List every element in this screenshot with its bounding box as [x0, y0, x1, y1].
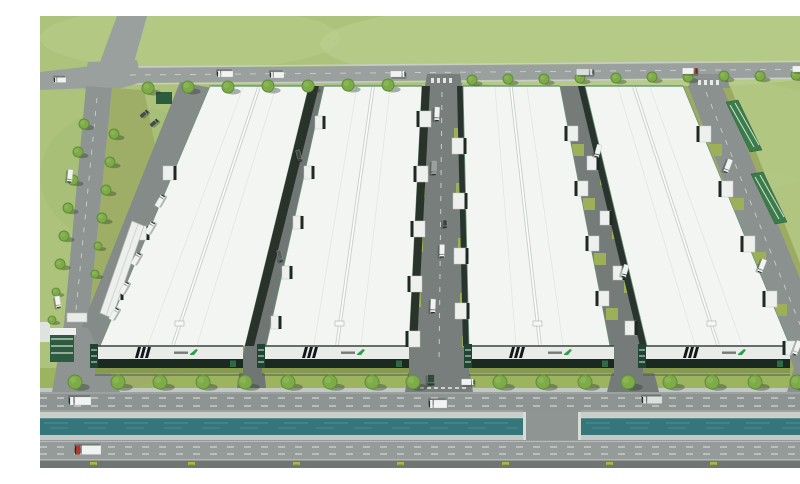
- dock-lawn: [583, 198, 595, 210]
- median-plant-shade: [503, 464, 508, 465]
- truck: [429, 161, 436, 176]
- dock-door-shadow: [467, 303, 470, 319]
- tree-highlight: [720, 72, 725, 77]
- crosswalk: [704, 80, 707, 85]
- tree-highlight: [56, 260, 61, 265]
- crosswalk: [431, 78, 434, 83]
- tree-highlight: [792, 377, 798, 383]
- median-plant-shade: [91, 464, 96, 465]
- crosswalk: [716, 80, 719, 85]
- truck-windshield: [443, 227, 446, 228]
- truck-windshield: [473, 379, 474, 384]
- dock-canopy-roof: [600, 211, 611, 225]
- facade-lower-band-4: [645, 359, 790, 368]
- truck-windshield: [642, 397, 643, 403]
- dock-door-shadow: [565, 126, 568, 141]
- loading-dock-canopy: [411, 221, 426, 237]
- dock-canopy-roof: [415, 166, 428, 182]
- loading-dock-canopy: [406, 331, 421, 347]
- brand-logo-text: [548, 352, 562, 354]
- truck: [428, 398, 447, 408]
- dock-door-shadow: [414, 166, 417, 182]
- truck-trailer: [428, 375, 435, 383]
- facade-lower-band-1: [97, 359, 243, 368]
- median-plant-shade: [294, 464, 299, 465]
- truck: [577, 69, 595, 77]
- truck-windshield: [435, 120, 439, 121]
- truck: [438, 244, 445, 258]
- facade-door: [396, 361, 402, 368]
- dock-door-shadow: [763, 291, 766, 307]
- dock-canopy-roof: [163, 166, 175, 180]
- dock-door-shadow: [719, 181, 722, 197]
- brand-logo-text: [174, 352, 188, 354]
- median-plant-shade: [607, 464, 612, 465]
- tree-highlight: [53, 289, 57, 293]
- tree-highlight: [80, 120, 85, 125]
- loading-dock-canopy: [625, 321, 638, 335]
- tree-highlight: [468, 76, 473, 81]
- tree-highlight: [612, 74, 617, 79]
- loading-dock-canopy: [408, 276, 423, 292]
- gatehouse: [50, 332, 74, 362]
- truck-trailer: [67, 169, 73, 179]
- crosswalk: [443, 78, 446, 83]
- dock-door-shadow: [279, 316, 282, 329]
- truck-trailer: [57, 78, 66, 83]
- truck-windshield: [432, 174, 436, 175]
- warehouse-facade-3: [471, 346, 614, 359]
- tree-highlight: [495, 377, 501, 383]
- dock-door-shadow: [597, 156, 600, 170]
- brand-logo-text: [341, 352, 355, 354]
- gatehouse-roof: [48, 328, 76, 335]
- hedge: [95, 368, 243, 373]
- tree-highlight: [540, 75, 545, 80]
- dock-door-shadow: [464, 138, 467, 154]
- tree-highlight: [283, 377, 289, 383]
- loading-dock-canopy: [596, 291, 610, 306]
- canal-bridge: [523, 410, 581, 440]
- truck: [426, 375, 435, 387]
- canal-embankment-north: [40, 412, 800, 418]
- tree-highlight: [74, 148, 79, 153]
- canal-water-east: [581, 418, 800, 435]
- dock-door-shadow: [466, 248, 469, 264]
- facade-door: [230, 361, 236, 368]
- truck-trailer: [431, 161, 436, 172]
- loading-dock-canopy: [452, 138, 467, 154]
- dock-door-shadow: [408, 276, 411, 292]
- truck-trailer: [793, 66, 800, 72]
- dock-canopy-roof: [764, 291, 777, 307]
- truck-windshield: [75, 446, 76, 454]
- dock-door-shadow: [301, 216, 304, 229]
- truck: [641, 395, 662, 404]
- loading-dock-canopy: [304, 166, 315, 179]
- dock-canopy-roof: [412, 221, 425, 237]
- tree-highlight: [623, 377, 629, 383]
- loading-dock-canopy: [282, 266, 293, 279]
- dock-canopy-roof: [625, 321, 636, 335]
- truck-trailer: [221, 71, 233, 77]
- loading-dock-canopy: [417, 111, 432, 127]
- truck: [65, 169, 73, 184]
- tree-highlight: [95, 243, 99, 247]
- crosswalk: [710, 80, 713, 85]
- tree-highlight: [750, 377, 756, 383]
- truck-trailer: [434, 400, 447, 408]
- truck: [428, 299, 435, 314]
- truck-trailer: [462, 379, 472, 385]
- loading-dock-canopy: [271, 316, 282, 329]
- tree-highlight: [504, 75, 509, 80]
- crosswalk: [449, 78, 452, 83]
- median-plant-shade: [711, 464, 716, 465]
- tree-highlight: [92, 271, 96, 275]
- truck: [68, 395, 91, 405]
- median-plant-shade: [189, 464, 194, 465]
- dock-door-shadow: [312, 166, 315, 179]
- truck-trailer: [577, 69, 590, 75]
- dock-canopy-roof: [409, 276, 422, 292]
- truck-windshield: [54, 78, 55, 82]
- truck-windshield: [592, 69, 593, 74]
- dock-door-shadow: [290, 266, 293, 279]
- truck-windshield: [404, 71, 405, 76]
- tree-highlight: [49, 317, 53, 321]
- south-road: [40, 440, 800, 460]
- truck-trailer: [647, 397, 662, 404]
- tree-highlight: [113, 377, 119, 383]
- loading-dock-canopy: [453, 193, 468, 209]
- hedge: [262, 368, 409, 373]
- truck-trailer: [683, 68, 694, 74]
- industrial-park-aerial-view: Aerial 3D rendering of an industrial log…: [40, 16, 800, 468]
- brand-logo-text: [722, 352, 736, 354]
- roof-vent: [335, 321, 344, 326]
- bridge-parapet: [578, 412, 581, 440]
- tree-highlight: [198, 377, 204, 383]
- tree-highlight: [367, 377, 373, 383]
- dock-door-shadow: [174, 166, 177, 180]
- tree-highlight: [144, 84, 149, 89]
- dock-canopy-roof: [587, 236, 599, 251]
- truck: [53, 76, 66, 83]
- loading-dock-canopy: [565, 126, 579, 141]
- dock-door-shadow: [783, 341, 786, 355]
- dock-canopy-roof: [454, 248, 467, 264]
- guard-hut: [40, 322, 50, 342]
- aerial-render: [40, 16, 800, 468]
- tree-highlight: [707, 377, 713, 383]
- dock-canopy-roof: [452, 138, 465, 154]
- dock-door-shadow: [741, 236, 744, 252]
- truck-windshield: [429, 400, 430, 407]
- truck-trailer: [391, 71, 402, 77]
- dock-door-shadow: [575, 181, 578, 196]
- tree-highlight: [64, 204, 69, 209]
- truck: [391, 71, 407, 79]
- tree-highlight: [155, 377, 161, 383]
- truck-trailer: [274, 72, 284, 78]
- roof-vent: [707, 321, 716, 326]
- roof-vent: [533, 321, 542, 326]
- dock-canopy-roof: [407, 331, 420, 347]
- loading-dock-canopy: [575, 181, 589, 196]
- loading-dock-canopy: [315, 116, 326, 129]
- dock-lawn: [606, 308, 618, 320]
- dock-canopy-roof: [597, 291, 609, 306]
- dock-canopy-roof: [418, 111, 431, 127]
- loading-dock-canopy: [163, 166, 177, 180]
- tree-highlight: [384, 81, 389, 86]
- tree-highlight: [344, 81, 349, 86]
- dock-door-shadow: [323, 116, 326, 129]
- tree-highlight: [408, 377, 414, 383]
- dock-canopy-roof: [742, 236, 755, 252]
- truck-trailer: [430, 299, 435, 310]
- dock-canopy-roof: [720, 181, 733, 197]
- loading-dock-canopy: [763, 291, 778, 307]
- warehouse-facade-4: [645, 346, 790, 359]
- dock-canopy-roof: [566, 126, 578, 141]
- facade-lower-band-2: [264, 359, 409, 368]
- truck-trailer: [75, 397, 91, 405]
- loading-dock-canopy: [455, 303, 470, 319]
- tree-highlight: [665, 377, 671, 383]
- loading-dock-canopy: [454, 248, 469, 264]
- tree-highlight: [648, 73, 653, 78]
- loading-dock-canopy: [293, 216, 304, 229]
- loading-dock-canopy: [587, 156, 600, 170]
- tree-highlight: [325, 377, 331, 383]
- dock-door-shadow: [635, 321, 638, 335]
- truck-windshield: [69, 397, 70, 404]
- dock-door-shadow: [465, 193, 468, 209]
- dock-door-shadow: [697, 126, 700, 142]
- truck-windshield: [696, 68, 697, 73]
- tree-highlight: [70, 377, 76, 383]
- dock-canopy-roof: [455, 303, 468, 319]
- truck-trailer: [82, 446, 101, 455]
- truck-windshield: [217, 71, 218, 76]
- dock-canopy-roof: [698, 126, 711, 142]
- south-median: [40, 460, 800, 468]
- tree-highlight: [98, 214, 103, 219]
- tree-highlight: [106, 158, 111, 163]
- dock-canopy-roof: [576, 181, 588, 196]
- loading-dock-canopy: [719, 181, 734, 197]
- loading-dock-canopy: [600, 211, 613, 225]
- tree-highlight: [110, 130, 115, 135]
- hedge: [643, 368, 790, 373]
- truck-windshield: [428, 384, 434, 385]
- tree-highlight: [538, 377, 544, 383]
- tree-highlight: [60, 232, 65, 237]
- truck-trailer: [439, 244, 444, 254]
- warehouse-facade-1: [97, 346, 243, 359]
- truck: [441, 220, 447, 229]
- tree-highlight: [756, 72, 761, 77]
- loading-dock-canopy: [586, 236, 600, 251]
- gate-canopy: [67, 313, 87, 322]
- loading-dock-canopy: [697, 126, 712, 142]
- dock-door-shadow: [417, 111, 420, 127]
- truck: [793, 66, 800, 74]
- front-road: [40, 392, 800, 412]
- roof-vent: [175, 321, 184, 326]
- dock-lawn: [594, 253, 606, 265]
- truck-trailer: [434, 107, 439, 118]
- tree-highlight: [580, 377, 586, 383]
- truck-trailer: [443, 220, 447, 226]
- facade-door: [777, 361, 783, 368]
- warehouse-facade-2: [264, 346, 409, 359]
- dock-door-shadow: [406, 331, 409, 347]
- truck: [462, 379, 476, 387]
- crosswalk: [437, 78, 440, 83]
- tree-highlight: [184, 83, 189, 88]
- truck-windshield: [270, 72, 271, 77]
- dock-lawn: [572, 144, 584, 156]
- tree-highlight: [264, 82, 269, 87]
- truck: [683, 68, 699, 76]
- median-plant-shade: [398, 464, 403, 465]
- dock-door-shadow: [610, 211, 613, 225]
- dock-canopy-roof: [453, 193, 466, 209]
- bridge-parapet: [523, 412, 526, 440]
- facade-door: [602, 361, 608, 368]
- tree-highlight: [102, 186, 107, 191]
- loading-dock-canopy: [741, 236, 756, 252]
- hedge: [469, 368, 614, 373]
- truck: [269, 70, 284, 78]
- dock-door-shadow: [586, 236, 589, 251]
- truck: [432, 107, 439, 122]
- dock-door-shadow: [596, 291, 599, 306]
- dock-door-shadow: [411, 221, 414, 237]
- canal-embankment-south: [40, 435, 800, 440]
- facade-lower-band-3: [471, 359, 614, 368]
- canal-water-west: [40, 418, 523, 435]
- truck: [74, 444, 101, 455]
- tree-highlight: [224, 83, 229, 88]
- truck-windshield: [440, 256, 444, 257]
- truck: [216, 69, 233, 77]
- loading-dock-canopy: [414, 166, 429, 182]
- truck-windshield: [431, 312, 435, 313]
- tree-highlight: [304, 82, 309, 87]
- tree-highlight: [240, 377, 246, 383]
